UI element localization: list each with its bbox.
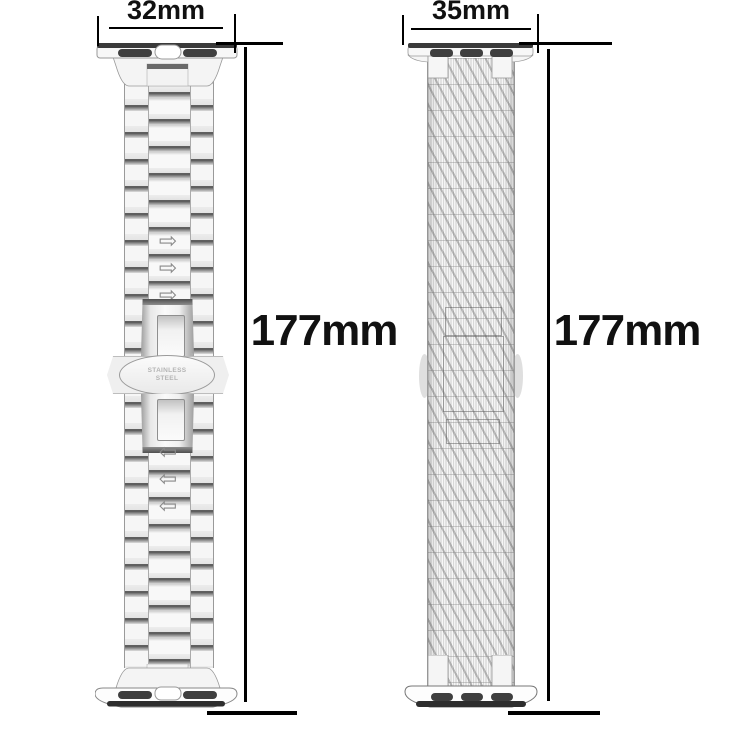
clasp-engraved-cover: STAINLESS STEEL [119,355,215,395]
dim-tick [207,711,297,715]
clasp-release-button-upper [157,315,185,357]
lug-slot [183,49,217,57]
clasp-pin [141,353,144,356]
lug-rail-edge [107,701,225,707]
lug-slot [460,49,483,57]
lug-slot [183,691,217,699]
clasp-release-button-lower [157,399,185,441]
left-length-dim-label: 177mm [250,309,398,353]
fold-direction-arrow-left-icon: ⇦ [151,494,185,520]
mesh-clasp-outline [443,336,504,412]
right-length-dim-label: 177mm [553,309,701,353]
dim-tick [519,42,612,45]
band-adapter [428,55,448,78]
lug-slot [461,693,483,701]
fold-direction-arrow-left-icon: ⇦ [151,440,185,466]
fold-direction-arrow-right-icon: ⇨ [151,229,185,255]
band-adapter [492,55,512,78]
right-band-bottom-lug-connector [400,655,540,710]
lug-rail-edge [416,701,526,707]
clasp-engraving-line2: STEEL [148,375,187,383]
left-band-top-lug-connector [95,42,245,90]
dim-line-width-left [109,27,223,29]
lug-release-tab [155,687,181,700]
dim-line-length-left [244,47,247,702]
band-adapter [492,655,512,688]
left-band-bottom-lug-connector [95,664,245,710]
dim-line-length-right [547,49,550,701]
dim-tick [508,711,600,715]
lug-slot [491,693,513,701]
lug-rail-edge [408,43,533,48]
lug-slot [490,49,513,57]
clasp-engraving: STAINLESS STEEL [148,367,187,383]
clasp-engraving-line1: STAINLESS [148,367,187,375]
band-adapter [428,655,448,688]
mesh-clasp-side-bulge [512,354,523,398]
dim-tick [216,42,283,45]
left-width-dim-label: 32mm [96,0,236,24]
lug-slot [430,49,453,57]
right-band-top-lug-connector [400,42,540,82]
mesh-clasp-outline [445,307,502,336]
mesh-clasp-outline [446,419,500,444]
lug-slot [431,693,453,701]
clasp-edge-bar [141,299,194,305]
lug-slot [118,691,152,699]
fold-direction-arrow-left-icon: ⇦ [151,467,185,493]
watch-band-dimension-diagram: ⇨ ⇨ ⇨ STAINLESS STEEL ⇦ ⇦ ⇦ [0,0,750,750]
fold-direction-arrow-right-icon: ⇨ [151,256,185,282]
clasp-pin [190,353,193,356]
lug-release-tab [155,45,181,59]
dim-line-width-right [411,28,531,30]
lug-slot [118,49,152,57]
right-width-dim-label: 35mm [401,0,541,24]
mesh-clasp-side-bulge [419,354,430,398]
